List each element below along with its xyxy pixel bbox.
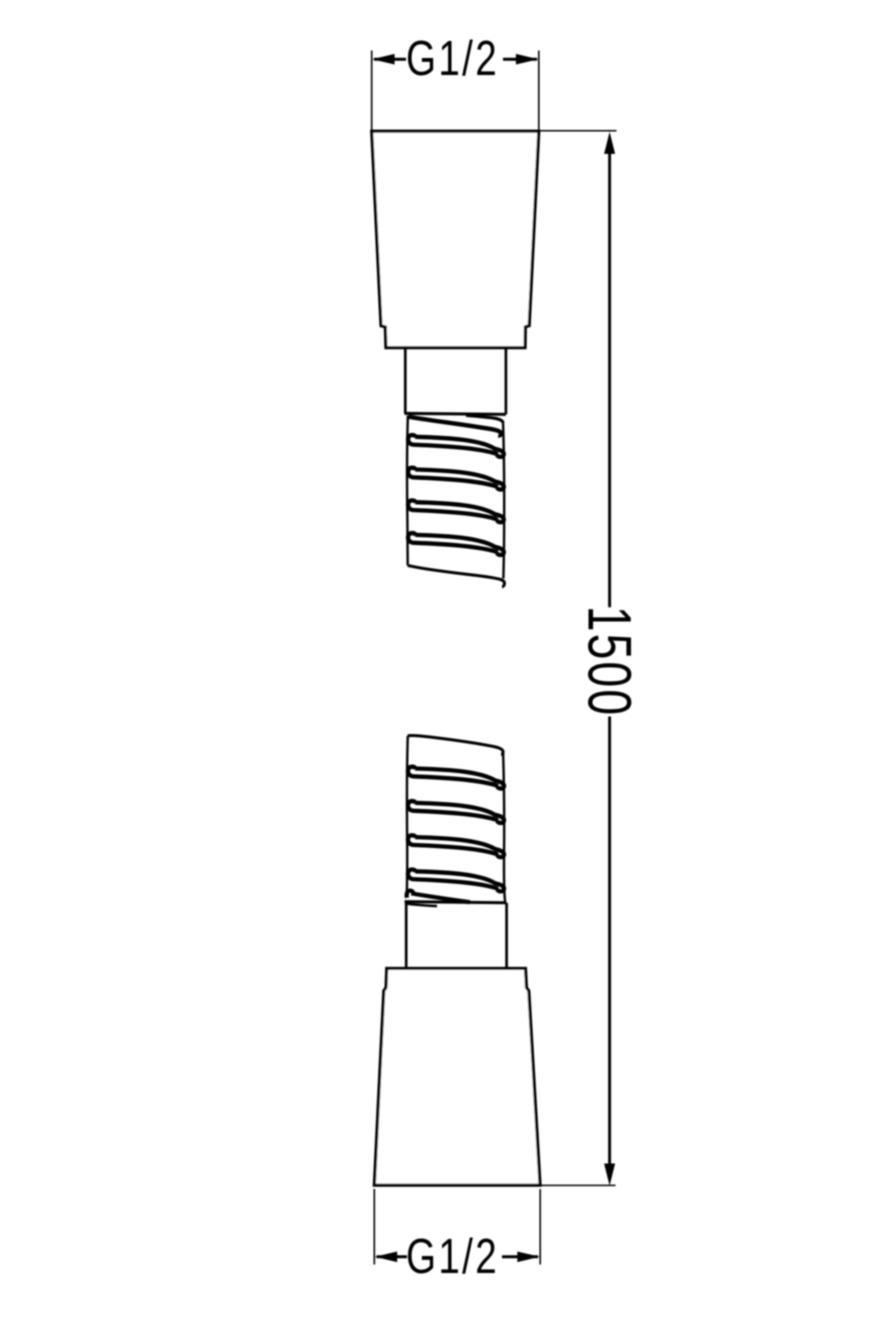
- svg-text:1500: 1500: [575, 606, 643, 717]
- svg-text:G1/2: G1/2: [406, 32, 499, 87]
- svg-text:G1/2: G1/2: [406, 1229, 499, 1284]
